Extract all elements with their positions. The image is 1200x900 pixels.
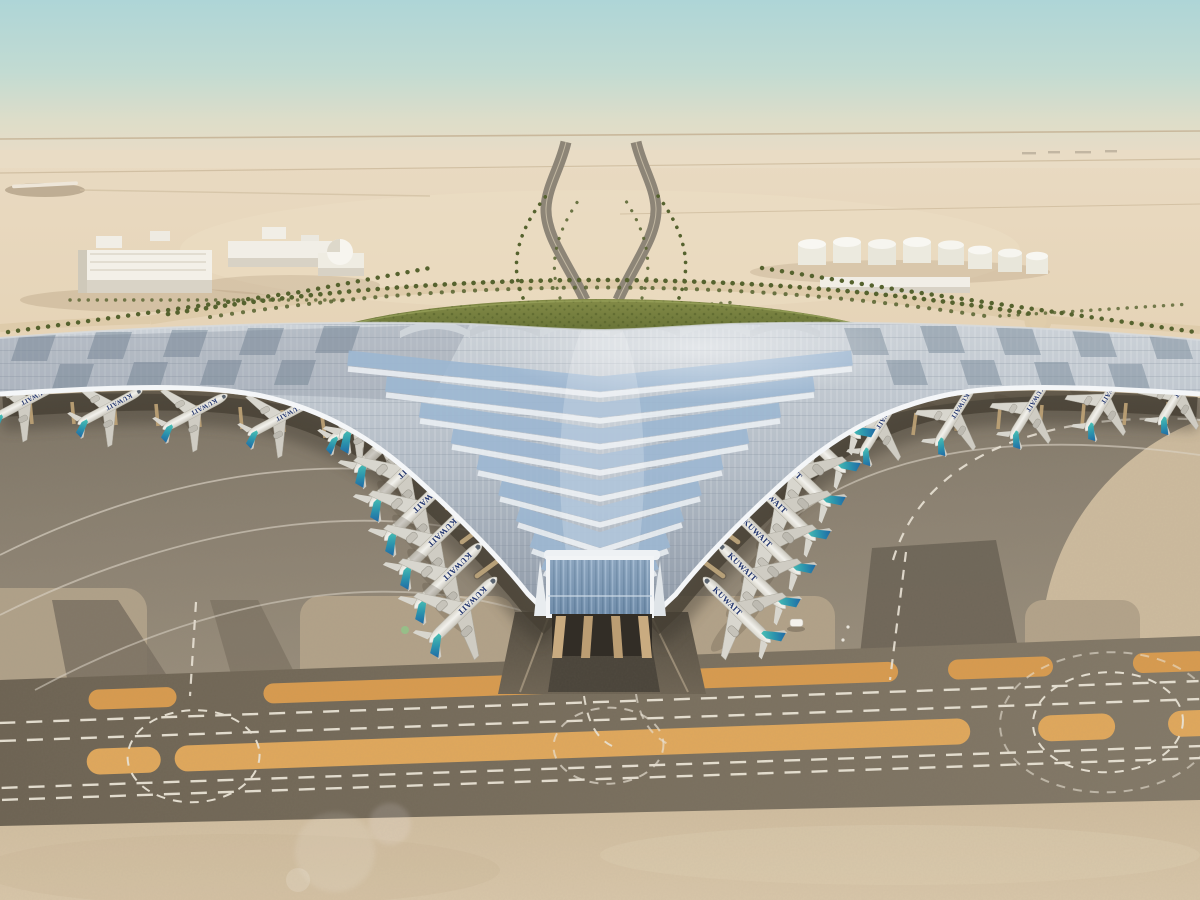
entrance-facade: [534, 550, 666, 658]
entrance-recess: [552, 614, 652, 656]
sky: [0, 0, 1200, 160]
scene-rendering: Aerial architectural rendering of a tref…: [0, 0, 1200, 900]
rendering-stage: Aerial architectural rendering of a tref…: [0, 0, 1200, 900]
